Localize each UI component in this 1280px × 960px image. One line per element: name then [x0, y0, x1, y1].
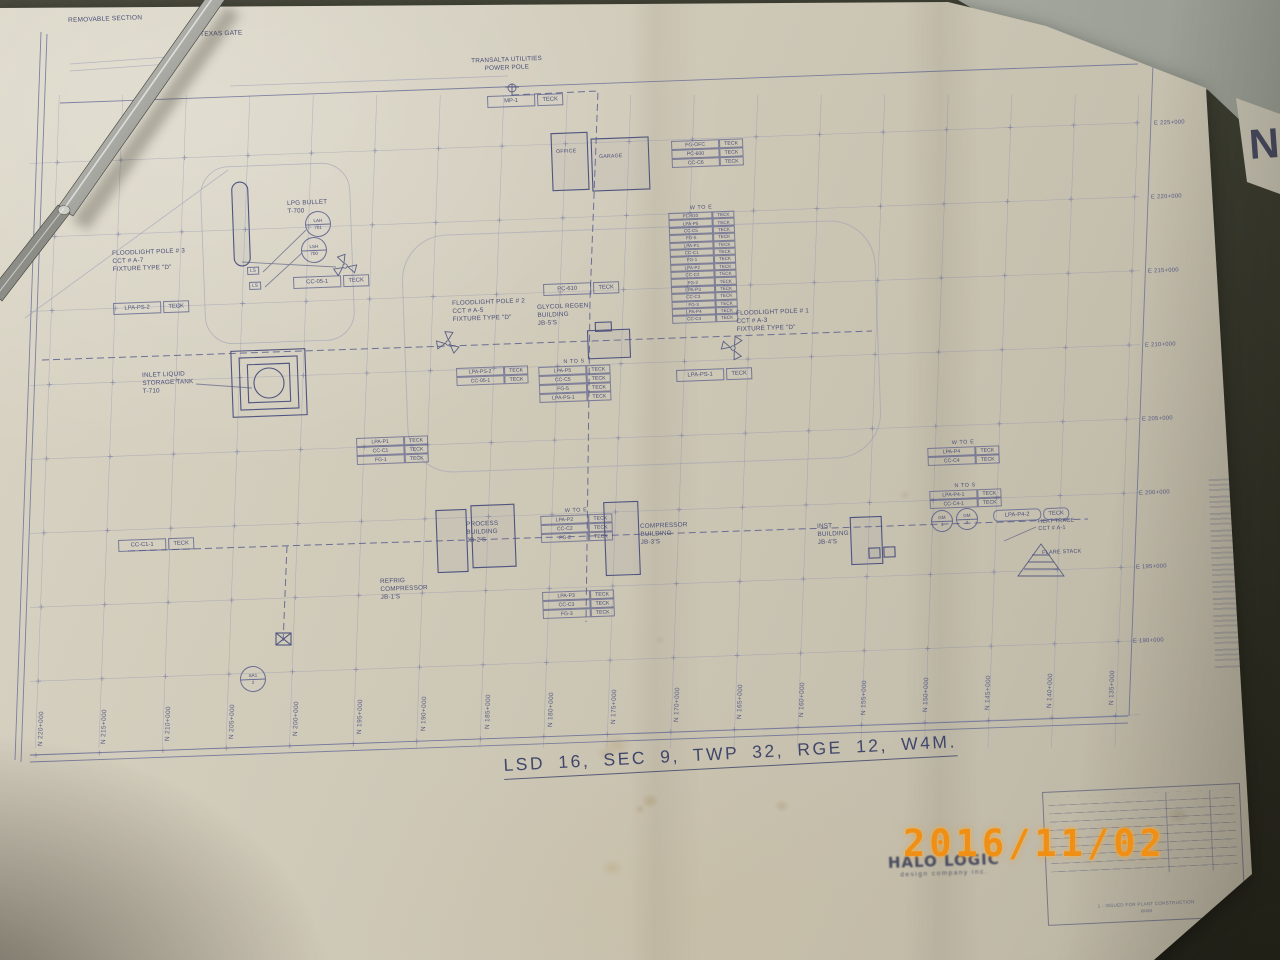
instrument-bubble: SA12	[240, 666, 267, 693]
cable-schedule-table: W TO ELPA-P4TECKCC-C4TECK	[927, 438, 1000, 466]
station-label-bottom: N 220+000	[37, 711, 45, 746]
station-label-right: E 205+000	[1142, 415, 1173, 422]
station-label-right: E 210+000	[1145, 341, 1176, 348]
station-label-right: E 220+000	[1151, 193, 1182, 200]
cable-tag: CC-C1-1TECK	[118, 537, 194, 552]
cable-tag: MP-1TECK	[487, 93, 563, 108]
plan-label: INSTBUILDINGJB-4'S	[817, 522, 849, 548]
plan-label: LS	[247, 267, 259, 275]
plan-label: OFFICE	[556, 148, 576, 155]
plan-label: COMPRESSORBUILDINGJB-3'S	[640, 521, 688, 547]
cable-tag: LPA-PS-2TECK	[113, 300, 189, 315]
cable-schedule-table: LPA-P1TECKCC-C1TECKFG-1TECK	[356, 435, 429, 465]
station-label-bottom: N 135+000	[1108, 670, 1116, 705]
instrument-bubble: GM1	[931, 510, 954, 533]
station-label-right: E 200+000	[1139, 489, 1170, 496]
station-label-bottom: N 175+000	[610, 689, 618, 724]
cable-schedule-table: N TO SLPA-P5TECKCC-C5TECKFG-5TECKLPA-PS-…	[538, 357, 612, 403]
station-label-bottom: N 180+000	[547, 692, 555, 727]
plan-label: TEXAS GATE	[200, 29, 243, 39]
station-label-bottom: N 150+000	[922, 677, 930, 712]
station-label-bottom: N 165+000	[736, 684, 744, 719]
cable-schedule-table: W TO ELPA-P2TECKCC-C2TECKFG-2TECK	[540, 506, 613, 543]
cable-schedule-table: FG-OFCTECKPC-600TECKCC-C6TECK	[671, 138, 744, 168]
plan-label: FLARE STACK	[1042, 549, 1082, 558]
station-label-bottom: N 160+000	[798, 682, 806, 717]
station-label-bottom: N 145+000	[984, 675, 992, 710]
plan-label: FLOODLIGHT POLE # 3CCT # A-7FIXTURE TYPE…	[112, 247, 186, 274]
station-label-right: E 190+000	[1133, 637, 1164, 644]
cable-schedule-table: LPA-P3TECKCC-C3TECKFG-3TECK	[542, 589, 615, 619]
legal-description: LSD 16, SEC 9, TWP 32, RGE 12, W4M.	[503, 731, 958, 780]
instrument-bubble: LSH700	[301, 237, 328, 264]
station-label-bottom: N 170+000	[673, 687, 681, 722]
station-label-bottom: N 215+000	[100, 709, 108, 744]
station-label-bottom: N 140+000	[1046, 673, 1054, 708]
station-label-bottom: N 200+000	[292, 701, 300, 736]
plan-label: FLOODLIGHT POLE # 2CCT # A-5FIXTURE TYPE…	[452, 297, 526, 324]
cable-tag: PC-610TECK	[543, 281, 619, 296]
station-label-bottom: N 155+000	[860, 680, 868, 715]
plan-label: REMOVABLE SECTION	[68, 14, 142, 25]
station-label-right: E 225+000	[1154, 119, 1185, 126]
plan-label: GARAGE	[599, 153, 623, 161]
cable-tag: CC-05-1TECK	[293, 274, 369, 289]
camera-timestamp: 2016/11/02	[903, 822, 1166, 865]
station-label-right: E 195+000	[1136, 563, 1167, 570]
plan-annotations: LSD 16, SEC 9, TWP 32, RGE 12, W4M. 1 - …	[0, 0, 1280, 960]
plan-label: LS	[249, 282, 261, 290]
photo-of-blueprint: N	[0, 0, 1280, 960]
station-label-bottom: N 190+000	[420, 696, 428, 731]
station-label-bottom: N 195+000	[356, 699, 364, 734]
plan-label: INLET LIQUIDSTORAGE TANKT-710	[142, 370, 194, 396]
station-label-bottom: N 205+000	[228, 704, 236, 739]
instrument-bubble: GM2	[956, 508, 979, 531]
blueprint-paper-wrap: LSD 16, SEC 9, TWP 32, RGE 12, W4M. 1 - …	[0, 0, 1280, 960]
cable-schedule-table: LPA-PS-2TECKCC-05-1TECK	[456, 365, 529, 386]
cable-schedule-table: W TO EPC-610TECKLPA-P5TECKCC-C5TECKFG-5T…	[668, 204, 738, 324]
cable-tag: LPA-PS-1TECK	[676, 367, 752, 382]
cable-schedule-table: N TO SLPA-P4-1TECKCC-C4-1TECK	[929, 481, 1002, 509]
station-label-bottom: N 185+000	[484, 694, 492, 729]
station-label-bottom: N 210+000	[164, 706, 172, 741]
blueprint-paper: LSD 16, SEC 9, TWP 32, RGE 12, W4M. 1 - …	[0, 0, 1280, 960]
notes-block	[1209, 477, 1278, 671]
corner-letter-n: N	[1247, 119, 1280, 169]
plan-label: FLOODLIGHT POLE # 1CCT # A-3FIXTURE TYPE…	[736, 307, 810, 334]
station-label-right: E 215+000	[1148, 267, 1179, 274]
plan-label: TRANSALTA UTILITIESPOWER POLE	[459, 55, 555, 75]
instrument-bubble: LAH701	[305, 211, 332, 238]
plan-label: PROCESSBUILDINGJB-2'S	[466, 520, 499, 546]
plan-label: GLYCOL REGENBUILDINGJB-5'S	[537, 302, 589, 328]
plan-label: REFRIGCOMPRESSORJB-1'S	[380, 576, 428, 602]
